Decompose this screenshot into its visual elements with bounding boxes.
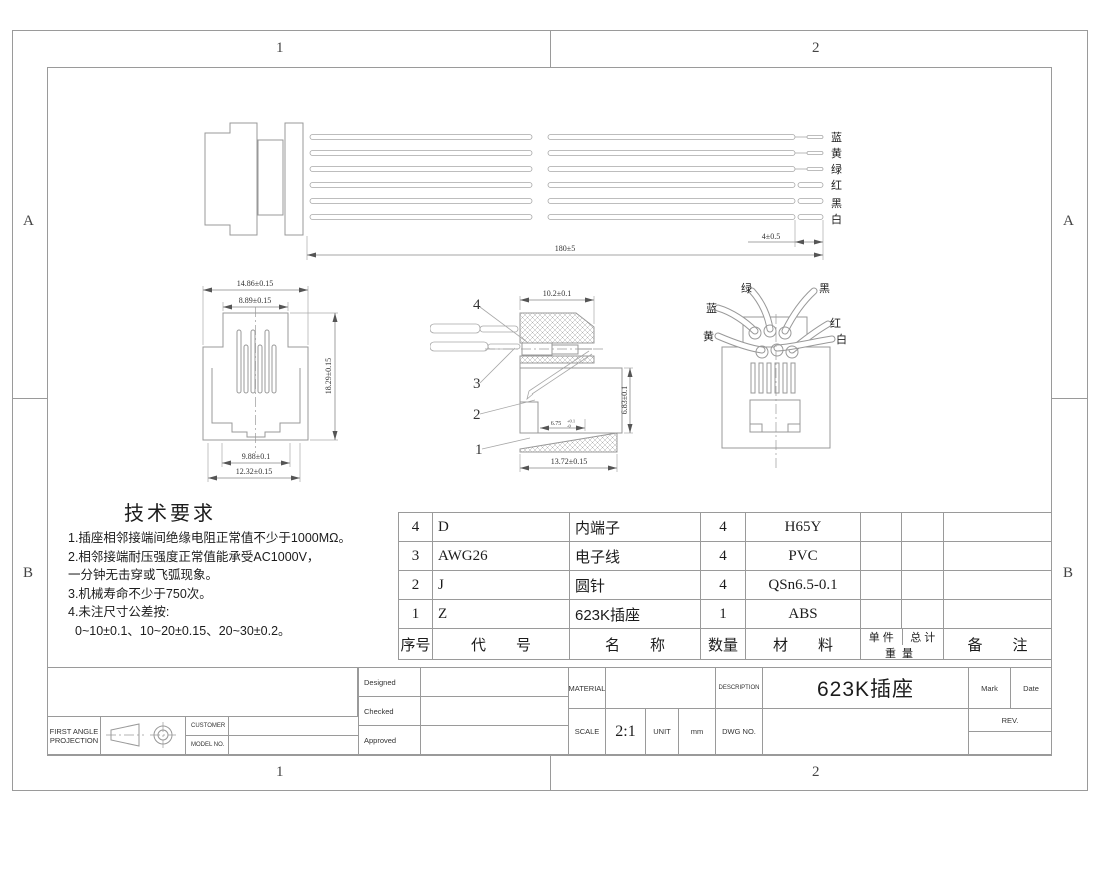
bom-cell-no: 2 [398, 570, 433, 600]
bom-cell-remark [943, 570, 1052, 600]
plug-window [258, 140, 283, 215]
wire-label-white: 白 [831, 212, 842, 226]
callout-4: 4 [473, 297, 481, 313]
overmold-hatched [520, 313, 594, 343]
callout-3: 3 [473, 376, 481, 392]
material-label: MATERIAL [568, 667, 606, 709]
designed-label: Designed [358, 667, 421, 697]
back-wire-label-white: 白 [836, 332, 847, 346]
bom-cell-unit-weight [860, 570, 902, 600]
bom-header-unit-weight: 单 件 [861, 629, 903, 645]
bom-cell-name: 内端子 [569, 512, 701, 542]
front-contact-slots [237, 330, 276, 393]
unit-value: mm [678, 708, 716, 755]
description-label: DESCRIPTION [715, 667, 763, 709]
bom-header-total-weight: 总 计 [903, 629, 944, 645]
bom-header-weight-label: 重量 [861, 645, 943, 660]
bom-cell-unit-weight [860, 541, 902, 571]
wire-label-yellow: 黄 [831, 146, 842, 160]
dwg-no-label: DWG NO. [715, 708, 763, 755]
scale-label: SCALE [568, 708, 606, 755]
zone-divider-bottom [550, 756, 551, 791]
zone-label-bottom-1: 1 [276, 764, 284, 781]
wire-label-black: 黑 [831, 197, 842, 210]
bom-cell-code: J [432, 570, 570, 600]
tech-requirement-item: 一分钟无击穿或飞弧现象。 [68, 566, 403, 585]
bom-cell-total-weight [901, 599, 944, 629]
bom-header-material: 材 料 [745, 628, 861, 660]
callout-1: 1 [475, 442, 483, 458]
fanned-wires [718, 291, 832, 350]
zone-label-top-2: 2 [812, 40, 820, 57]
back-foot-left [750, 424, 762, 432]
bom-cell-remark [943, 599, 1052, 629]
bom-header-remark: 备 注 [943, 628, 1052, 660]
checked-label: Checked [358, 696, 421, 726]
tech-requirements-title: 技术要求 [124, 497, 403, 526]
projection-label: FIRST ANGLE PROJECTION [47, 716, 101, 755]
back-wire-label-black: 黑 [819, 282, 830, 295]
zone-label-top-1: 1 [276, 40, 284, 57]
back-wire-label-red: 红 [830, 317, 841, 330]
title-block: FIRST ANGLE PROJECTION CUSTOMER MODEL NO… [47, 667, 1052, 755]
bom-cell-remark [943, 512, 1052, 542]
back-wire-label-blue: 蓝 [706, 302, 717, 315]
bom-cell-unit-weight [860, 512, 902, 542]
wire-label-green: 绿 [831, 162, 842, 176]
tech-requirement-item: 2.相邻接端耐压强度正常值能承受AC1000V， [68, 548, 403, 567]
customer-label: CUSTOMER [185, 716, 229, 736]
plug-boot [285, 123, 303, 235]
bom-header-qty: 数量 [700, 628, 746, 660]
bom-cell-qty: 4 [700, 512, 746, 542]
drawing-title: 623K插座 [762, 667, 969, 709]
back-wire-label-yellow: 黄 [703, 329, 714, 343]
back-latch-window [750, 400, 800, 432]
bom-cell-qty: 1 [700, 599, 746, 629]
dim-section-height: 6.83±0.1 [620, 386, 629, 414]
zone-divider-top [550, 30, 551, 67]
engineering-drawing-sheet: { "sheet": { "zone_top_1": "1", "zone_to… [0, 0, 1100, 895]
model-no-value [228, 735, 359, 755]
socket-back-view: 绿 黑 蓝 红 黄 白 [690, 272, 875, 472]
bom-header-code: 代 号 [432, 628, 570, 660]
zone-divider-left [12, 398, 47, 399]
back-wire-label-green: 绿 [741, 281, 752, 295]
bom-cell-qty: 4 [700, 541, 746, 571]
approved-label: Approved [358, 725, 421, 755]
zone-label-left-b: B [23, 565, 33, 582]
bom-cell-remark [943, 541, 1052, 571]
first-angle-projection-icon [101, 717, 185, 754]
mark-label: Mark [968, 667, 1011, 709]
bom-cell-unit-weight [860, 599, 902, 629]
dim-front-height: 18.29±0.15 [324, 358, 333, 394]
date-label: Date [1010, 667, 1052, 709]
entering-wires [430, 324, 520, 351]
bom-cell-material: H65Y [745, 512, 861, 542]
bom-cell-code: AWG26 [432, 541, 570, 571]
zone-label-bottom-2: 2 [812, 764, 820, 781]
dim-front-bottom-outer: 12.32±0.15 [236, 467, 272, 476]
plug-body-outline [205, 123, 257, 235]
wire-label-blue: 蓝 [831, 131, 842, 144]
unit-label: UNIT [645, 708, 679, 755]
dim-front-outer-width: 14.86±0.15 [237, 279, 273, 288]
back-body-outline [722, 347, 830, 448]
bom-cell-name: 623K插座 [569, 599, 701, 629]
checked-value [420, 696, 569, 726]
bom-header-name: 名 称 [569, 628, 701, 660]
dim-section-inner: 6.75 [551, 421, 562, 427]
tech-requirement-item: 1.插座相邻接端间绝缘电阻正常值不少于1000MΩ。 [68, 529, 403, 548]
bom-cell-qty: 4 [700, 570, 746, 600]
bom-cell-total-weight [901, 541, 944, 571]
socket-front-view: 14.86±0.15 8.89±0.15 18.29±0.15 9.88±0.1… [195, 275, 350, 490]
bom-cell-name: 电子线 [569, 541, 701, 571]
zone-label-left-a: A [23, 213, 34, 230]
bom-cell-no: 3 [398, 541, 433, 571]
bom-cell-no: 1 [398, 599, 433, 629]
bom-cell-no: 4 [398, 512, 433, 542]
designed-value [420, 667, 569, 697]
dim-section-top-width: 10.2±0.1 [543, 289, 571, 298]
bom-cell-total-weight [901, 570, 944, 600]
title-block-blank-area [47, 667, 358, 717]
customer-value [228, 716, 359, 736]
technical-requirements: 技术要求 1.插座相邻接端间绝缘电阻正常值不少于1000MΩ。 2.相邻接端耐压… [68, 497, 403, 640]
zone-divider-right [1052, 398, 1088, 399]
wire-label-red: 红 [831, 179, 842, 192]
section-inner-step [520, 402, 538, 433]
bom-cell-material: QSn6.5-0.1 [745, 570, 861, 600]
bom-header-no: 序号 [398, 628, 433, 660]
tech-requirement-item: 3.机械寿命不少于750次。 [68, 585, 403, 604]
overmold-lower-strip [520, 356, 594, 363]
bom-cell-material: PVC [745, 541, 861, 571]
zone-label-right-b: B [1063, 565, 1073, 582]
front-cavity-outline [212, 368, 300, 437]
dwg-no-value [762, 708, 969, 755]
tech-requirement-item: 0~10±0.1、10~20±0.15、20~30±0.2。 [68, 622, 403, 641]
dim-front-bottom-inner: 9.88±0.1 [242, 452, 270, 461]
socket-section-view: 10.2±0.1 6.75 +0.1 -0 6.83±0.1 13.72±0.1… [430, 280, 675, 495]
bom-cell-name: 圆针 [569, 570, 701, 600]
dim-front-inner-width: 8.89±0.15 [239, 296, 271, 305]
material-value [605, 667, 716, 709]
cable-assembly-view: 180±5 4±0.5 蓝 黄 绿 红 黑 白 [190, 110, 855, 265]
projection-symbol-cell [100, 716, 186, 755]
bom-cell-total-weight [901, 512, 944, 542]
dim-strip-length: 4±0.5 [762, 232, 780, 241]
latch-wedge-hatched [520, 433, 617, 452]
bom-table: 4 D 内端子 4 H65Y 3 AWG26 电子线 4 PVC 2 J 圆针 … [398, 512, 1052, 660]
bom-cell-code: D [432, 512, 570, 542]
bom-cell-material: ABS [745, 599, 861, 629]
callout-2: 2 [473, 407, 481, 423]
dim-section-bottom-width: 13.72±0.15 [551, 457, 587, 466]
dim-cable-length: 180±5 [555, 244, 575, 253]
scale-value: 2:1 [605, 708, 646, 755]
rev-label: REV. [968, 708, 1052, 732]
rev-value [968, 731, 1052, 755]
back-foot-right [788, 424, 800, 432]
zone-label-right-a: A [1063, 213, 1074, 230]
approved-value [420, 725, 569, 755]
tech-requirement-item: 4.未注尺寸公差按: [68, 603, 403, 622]
wires [310, 135, 823, 220]
bom-cell-code: Z [432, 599, 570, 629]
model-no-label: MODEL NO. [185, 735, 229, 755]
back-contact-slots [751, 363, 795, 393]
bom-header-weight: 单 件 总 计 重量 [860, 628, 944, 660]
